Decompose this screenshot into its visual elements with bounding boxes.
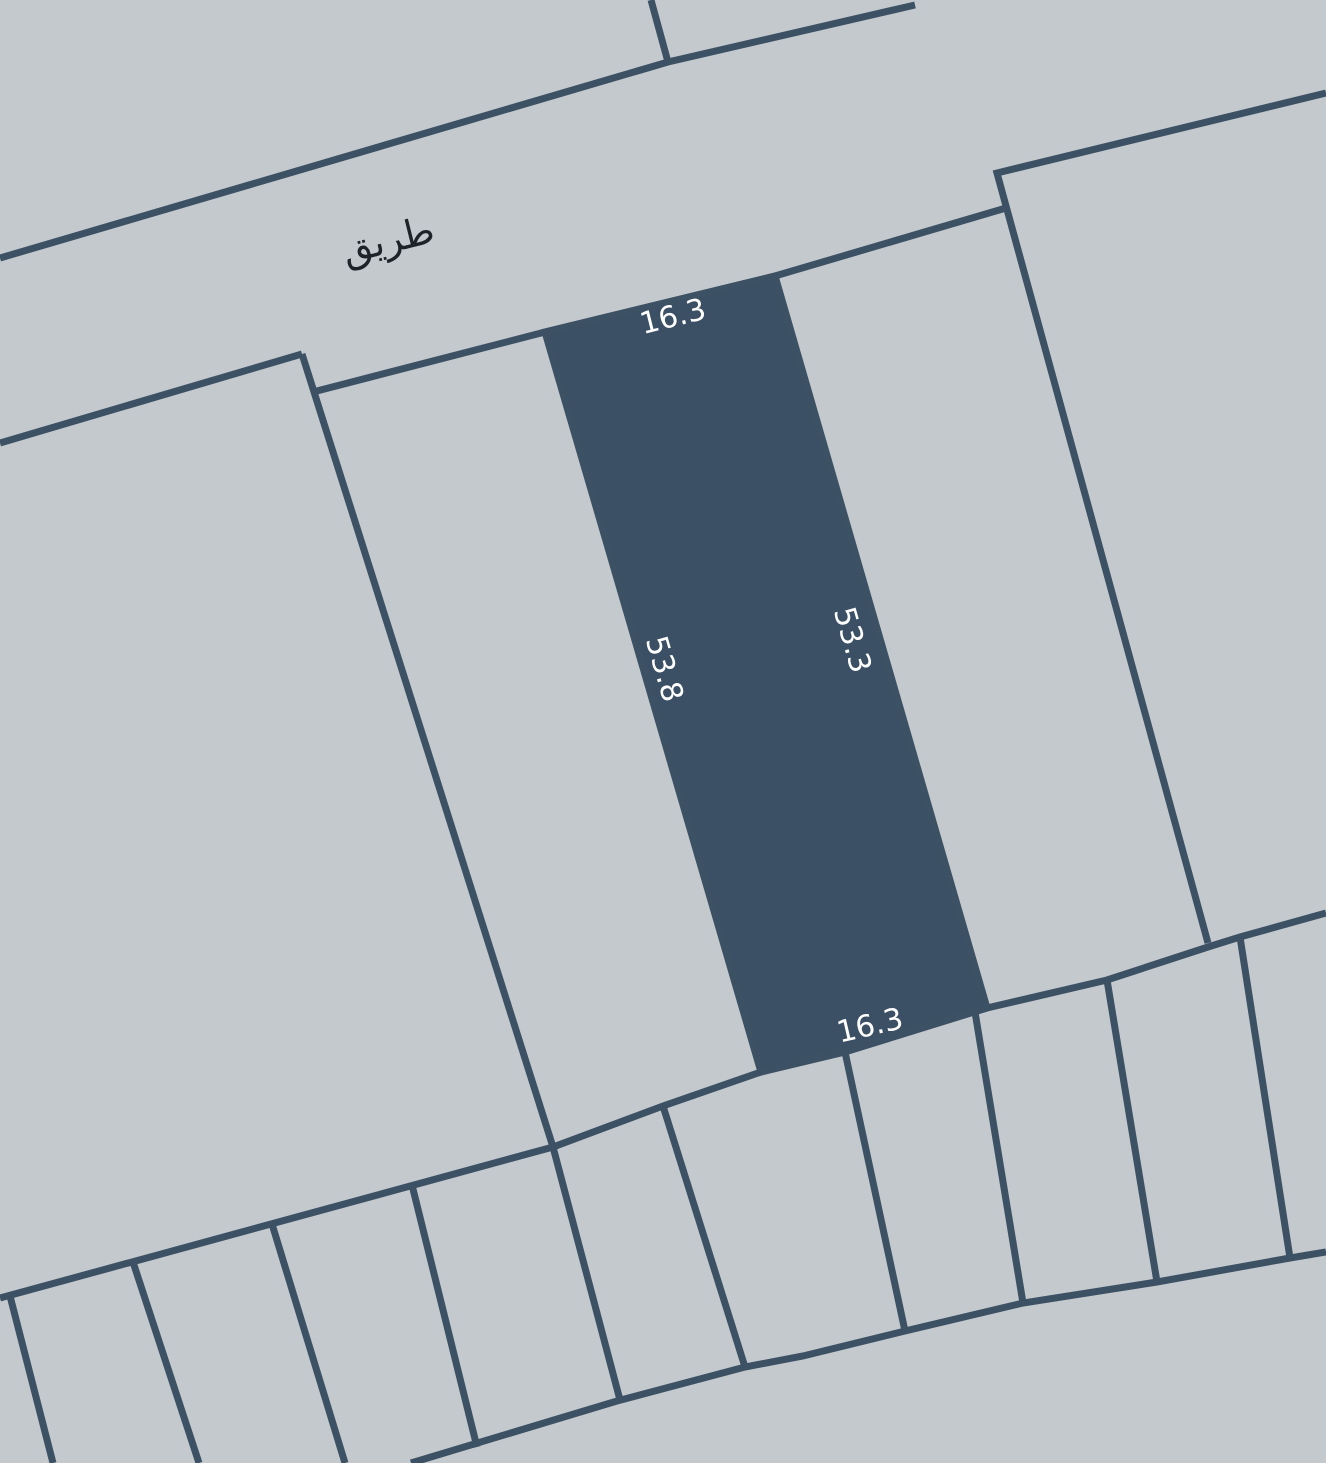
boundary-lot-line-8 [975,1012,1023,1303]
boundary-west-block-north-edge [0,354,302,443]
boundary-lot-line-2 [133,1262,199,1463]
boundary-north-lot-line [651,0,668,62]
boundary-lot-line-10 [1240,937,1290,1258]
boundary-lot-line-4 [412,1185,477,1447]
boundary-lot-line-5 [553,1147,620,1400]
boundary-lot-line-9 [1107,980,1157,1282]
boundary-road-north-edge [0,5,915,258]
boundary-lot-line-6 [663,1106,745,1367]
boundary-lot-line-7 [845,1052,905,1331]
boundary-lower-row-south-edge [411,1252,1326,1463]
boundary-east-block-west-edge [997,93,1326,943]
road-label: طريق [337,207,439,273]
boundary-lot-line-1 [10,1296,53,1463]
selected-parcel[interactable] [545,276,987,1072]
boundary-west-strip-edge [302,354,553,1147]
boundary-lot-line-3 [272,1224,345,1463]
map-canvas[interactable]: طريق 16.3 53.3 53.8 16.3 [0,0,1326,1463]
cadastral-parcel-map[interactable]: طريق 16.3 53.3 53.8 16.3 [0,0,1326,1463]
